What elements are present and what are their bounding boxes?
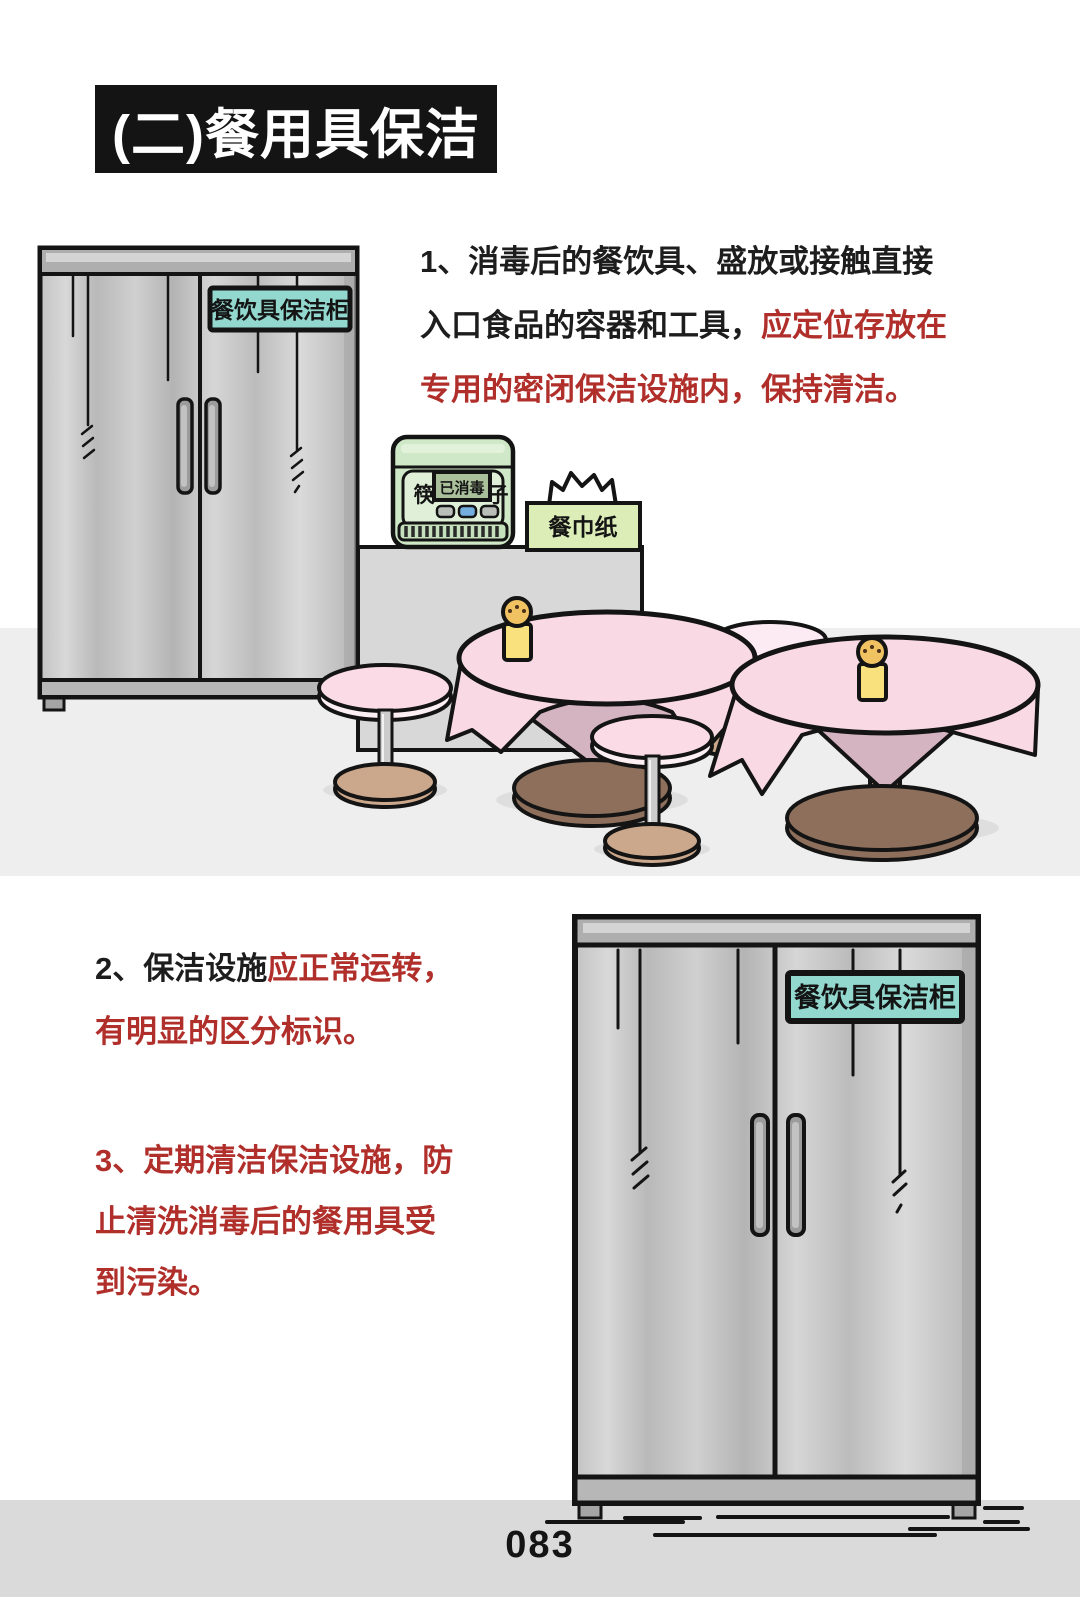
cleaning-cabinet-bottom: 餐饮具保洁柜	[575, 917, 978, 1518]
tissue-box-label: 餐巾纸	[549, 514, 618, 540]
stool-base	[335, 764, 435, 800]
sterilizer-display-text: 已消毒	[439, 479, 484, 497]
sterilizer-button	[437, 506, 454, 517]
table-base	[787, 786, 977, 850]
sterilizer-button	[481, 506, 498, 517]
chopstick-sterilizer: 筷 子 已消毒	[393, 437, 513, 547]
cabinet-sign-text: 餐饮具保洁柜	[794, 983, 956, 1013]
cabinet-base	[40, 680, 357, 697]
cleaning-cabinet-left: 餐饮具保洁柜	[40, 248, 357, 710]
section-title-box: (二)餐用具保洁	[95, 85, 497, 173]
page-number: 083	[480, 1524, 600, 1567]
stool-base	[605, 824, 699, 858]
cabinet-sign-text: 餐饮具保洁柜	[211, 297, 349, 323]
comic-page: (二)餐用具保洁 1、消毒后的餐饮具、盛放或接触直接 入口食品的容器和工具，应定…	[0, 0, 1080, 1597]
stool-top	[319, 665, 451, 711]
tissue-paper	[549, 473, 616, 505]
sterilizer-button	[459, 506, 476, 517]
tissue-box: 餐巾纸	[527, 473, 640, 550]
scene1-illustration: 餐饮具保洁柜 筷 子 已消毒 餐巾纸	[0, 220, 1080, 880]
stool-top	[592, 716, 712, 758]
table-number-stand	[858, 638, 886, 700]
cabinet-base	[575, 1477, 978, 1503]
table-number-stand	[503, 598, 531, 660]
scene2-illustration: 餐饮具保洁柜	[0, 890, 1080, 1597]
page-title: (二)餐用具保洁	[112, 90, 480, 169]
